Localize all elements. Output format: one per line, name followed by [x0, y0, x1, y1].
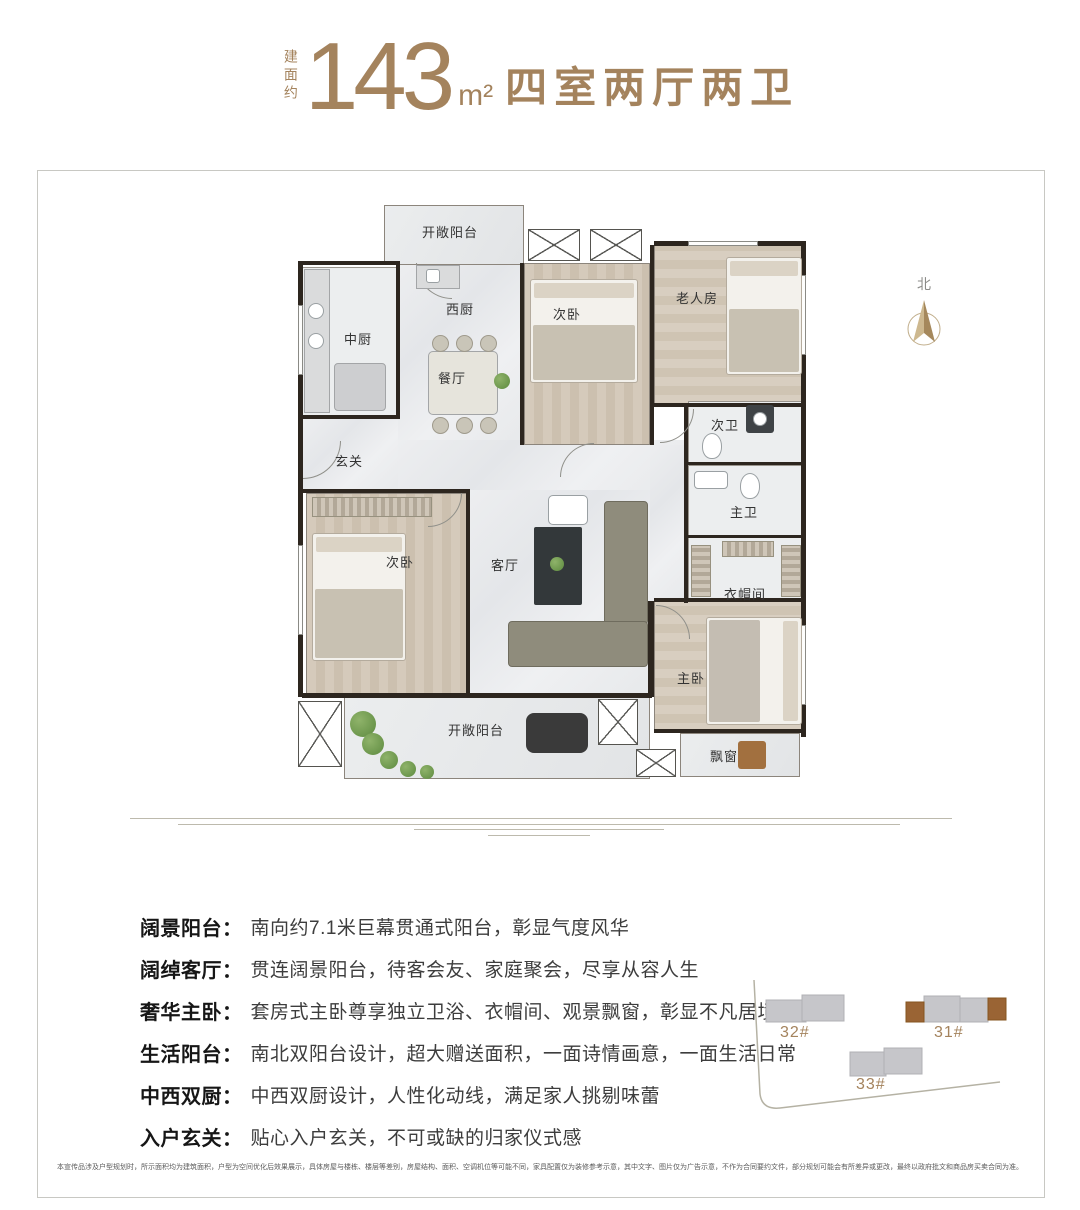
sink — [426, 269, 440, 283]
plant — [380, 751, 398, 769]
floorplan-ad-page: 建面约 143 m² 四室两厅两卫 — [0, 0, 1080, 1210]
deco-line — [130, 818, 952, 819]
room-label-bedroom-top: 次卧 — [553, 304, 581, 323]
sitemap-graphic — [738, 962, 1038, 1132]
room-label-bay-window: 飘窗 — [710, 746, 738, 765]
title-block: 建面约 143 m² 四室两厅两卫 — [0, 38, 1080, 117]
wall — [684, 403, 688, 603]
building-label-32: 32# — [780, 1024, 810, 1042]
ac-platform — [598, 699, 638, 745]
feature-item: 生活阳台： 南北双阳台设计，超大赠送面积，一面诗情画意，一面生活日常 — [140, 1031, 760, 1073]
title-area-unit: m² — [458, 79, 493, 113]
north-indicator: 北 — [900, 274, 948, 357]
site-map: 32# 31# 33# — [738, 962, 1038, 1132]
deco-line — [178, 824, 900, 825]
disclaimer-text: 本宣传品涉及户型规划时，所示面积均为建筑面积，户型为空间优化后效果展示，具体房屋… — [40, 1162, 1040, 1172]
wall — [396, 263, 400, 419]
compass-icon — [900, 294, 948, 352]
stove-burner — [308, 333, 324, 349]
room-label-bath-master: 主卫 — [730, 502, 758, 521]
sofa-vertical — [604, 501, 648, 625]
feature-desc: 贴心入户玄关，不可或缺的归家仪式感 — [251, 1123, 583, 1150]
stroller — [526, 713, 588, 753]
wall — [648, 601, 654, 697]
wall — [520, 263, 524, 445]
plant — [362, 733, 384, 755]
bath-corridor-floor — [650, 445, 688, 605]
room-label-bedroom-left: 次卧 — [386, 552, 414, 571]
window — [688, 241, 758, 246]
sofa-horizontal — [508, 621, 648, 667]
dining-chair — [480, 417, 497, 434]
room-label-bath-secondary: 次卫 — [711, 415, 739, 434]
dining-chair — [432, 417, 449, 434]
feature-list: 阔景阳台： 南向约7.1米巨幕贯通式阳台，彰显气度风华 阔绰客厅： 贯连阔景阳台… — [140, 905, 760, 1157]
toilet — [702, 433, 722, 459]
feature-item: 阔景阳台： 南向约7.1米巨幕贯通式阳台，彰显气度风华 — [140, 905, 760, 947]
ac-platform — [298, 701, 342, 767]
armchair — [548, 495, 588, 525]
stove-burner — [308, 303, 324, 319]
feature-name: 生活阳台： — [140, 1038, 243, 1067]
feature-item: 阔绰客厅： 贯连阔景阳台，待客会友、家庭聚会，尽享从容人生 — [140, 947, 760, 989]
room-label-west-kitchen: 西厨 — [446, 299, 474, 318]
building-label-33: 33# — [856, 1076, 886, 1094]
room-label-closet: 衣帽间 — [724, 584, 766, 603]
wall — [466, 489, 470, 697]
room-label-chinese-kitchen: 中厨 — [344, 329, 372, 348]
wardrobe — [312, 497, 432, 517]
dining-chair — [480, 335, 497, 352]
title-prefix-vertical: 建面约 — [281, 49, 301, 103]
toilet — [740, 473, 760, 499]
ac-platform — [528, 229, 580, 261]
dining-chair — [432, 335, 449, 352]
room-label-balcony-bottom: 开敞阳台 — [448, 720, 504, 739]
ac-platform — [590, 229, 642, 261]
building-label-31: 31# — [934, 1024, 964, 1042]
floor-plan: 开敞阳台 西厨 中厨 次卧 老人房 餐厅 次卫 玄关 主卫 次卧 客厅 衣帽间 … — [298, 205, 810, 793]
plant — [550, 557, 564, 571]
wall — [650, 245, 654, 445]
room-label-balcony-top: 开敞阳台 — [422, 222, 478, 241]
feature-desc: 套房式主卧尊享独立卫浴、衣帽间、观景飘窗，彰显不凡居境 — [251, 997, 778, 1024]
deco-line — [488, 835, 590, 836]
bed-master — [706, 617, 802, 725]
room-label-foyer: 玄关 — [335, 451, 363, 470]
feature-name: 阔绰客厅： — [140, 954, 243, 983]
bed-elder — [726, 257, 802, 375]
window — [298, 305, 303, 375]
wall — [298, 261, 400, 265]
plant — [494, 373, 510, 389]
north-label: 北 — [900, 274, 948, 294]
room-label-elder-room: 老人房 — [676, 288, 718, 307]
wall — [302, 693, 652, 698]
deco-line — [414, 829, 664, 830]
feature-desc: 中西双厨设计，人性化动线，满足家人挑剔味蕾 — [251, 1081, 661, 1108]
wall — [650, 403, 804, 407]
feature-name: 奢华主卧： — [140, 996, 243, 1025]
title-layout-text: 四室两厅两卫 — [505, 54, 799, 115]
bay-cushion — [738, 741, 766, 769]
feature-item: 中西双厨： 中西双厨设计，人性化动线，满足家人挑剔味蕾 — [140, 1073, 760, 1115]
sink-master-bath — [694, 471, 728, 489]
dining-chair — [456, 417, 473, 434]
closet-wardrobe — [781, 545, 801, 597]
room-label-dining: 餐厅 — [438, 368, 466, 387]
dining-chair — [456, 335, 473, 352]
feature-desc: 贯连阔景阳台，待客会友、家庭聚会，尽享从容人生 — [251, 955, 700, 982]
plant — [420, 765, 434, 779]
wall — [298, 415, 398, 419]
ac-platform — [636, 749, 676, 777]
feature-name: 中西双厨： — [140, 1080, 243, 1109]
closet-wardrobe — [691, 545, 711, 597]
room-label-living: 客厅 — [491, 555, 519, 574]
corridor-floor — [398, 440, 688, 493]
bed-secondary-top — [530, 279, 638, 383]
closet-wardrobe — [722, 541, 774, 557]
wall — [654, 729, 804, 733]
fridge — [334, 363, 386, 411]
window — [298, 545, 303, 635]
feature-name: 入户玄关： — [140, 1122, 243, 1151]
plant — [400, 761, 416, 777]
feature-item: 入户玄关： 贴心入户玄关，不可或缺的归家仪式感 — [140, 1115, 760, 1157]
wall — [688, 535, 804, 538]
feature-desc: 南北双阳台设计，超大赠送面积，一面诗情画意，一面生活日常 — [251, 1039, 797, 1066]
title-area-number: 143 — [305, 38, 450, 117]
wall — [688, 462, 804, 465]
feature-desc: 南向约7.1米巨幕贯通式阳台，彰显气度风华 — [251, 913, 630, 940]
feature-name: 阔景阳台： — [140, 912, 243, 941]
washer-door — [753, 412, 767, 426]
feature-item: 奢华主卧： 套房式主卧尊享独立卫浴、衣帽间、观景飘窗，彰显不凡居境 — [140, 989, 760, 1031]
room-label-master-bedroom: 主卧 — [677, 668, 705, 687]
